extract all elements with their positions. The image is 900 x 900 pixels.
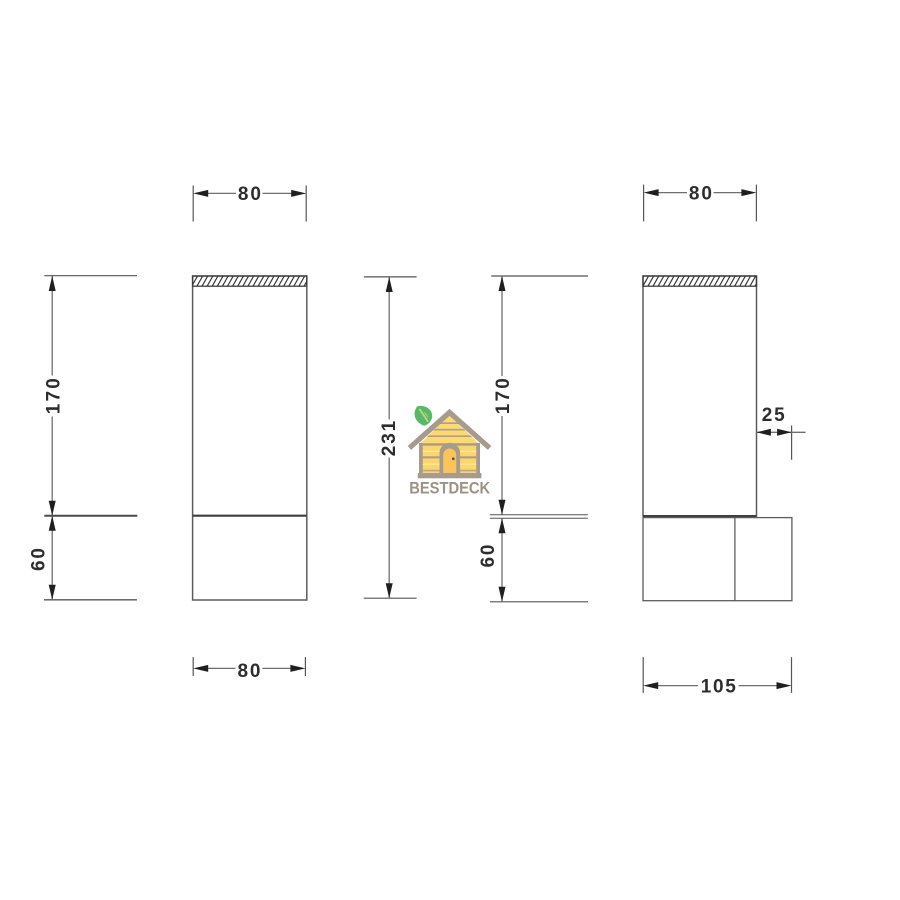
svg-text:105: 105 [701, 677, 736, 698]
svg-text:80: 80 [689, 184, 712, 205]
svg-text:60: 60 [478, 545, 499, 568]
svg-text:80: 80 [238, 661, 261, 682]
svg-text:60: 60 [28, 548, 49, 571]
svg-text:170: 170 [493, 378, 514, 414]
svg-text:231: 231 [379, 420, 400, 456]
svg-text:25: 25 [762, 405, 785, 426]
svg-text:BESTDECK: BESTDECK [409, 479, 490, 497]
svg-text:170: 170 [43, 378, 64, 414]
svg-text:80: 80 [238, 184, 261, 205]
